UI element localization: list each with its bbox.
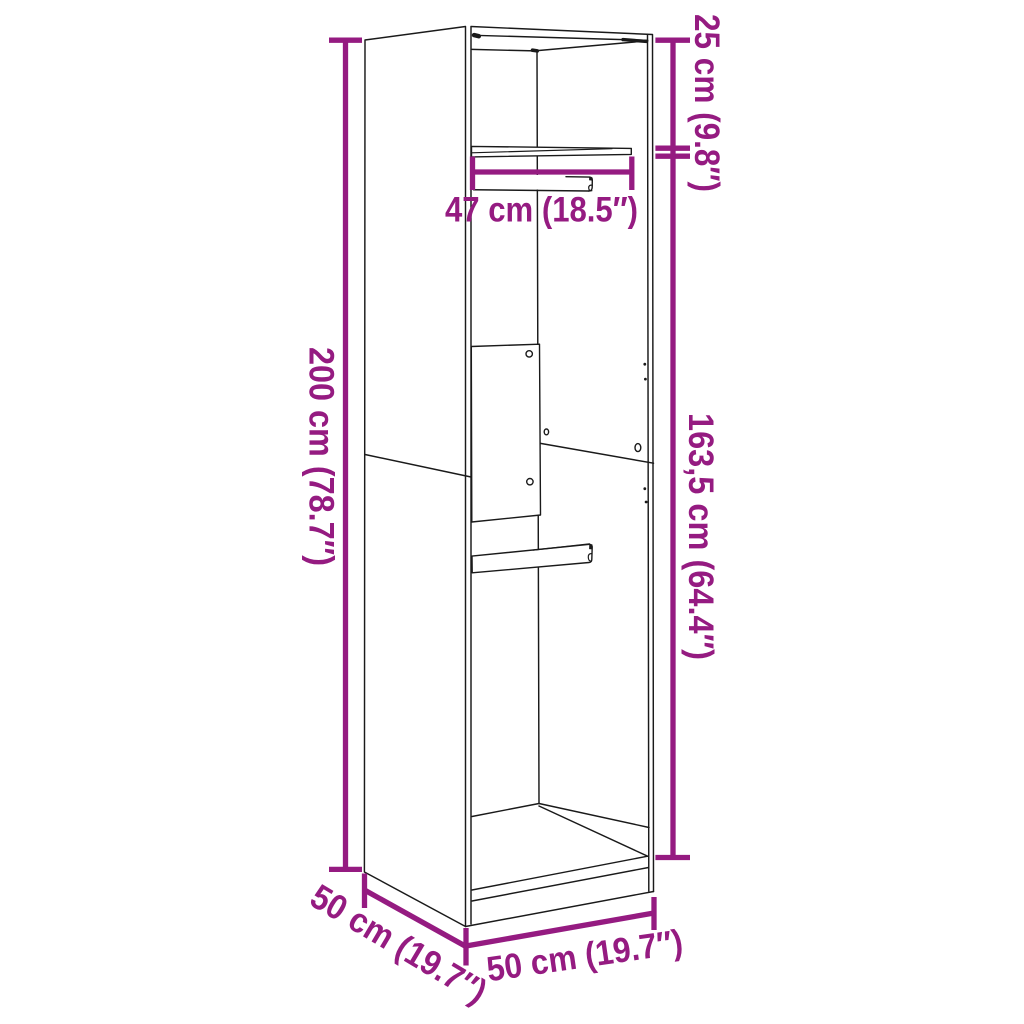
svg-text:25 cm (9.8″): 25 cm (9.8″) [687, 14, 726, 192]
svg-text:47 cm (18.5″): 47 cm (18.5″) [445, 190, 638, 229]
svg-text:163,5 cm (64.4″): 163,5 cm (64.4″) [681, 413, 720, 660]
svg-text:200 cm (78.7″): 200 cm (78.7″) [302, 347, 341, 566]
